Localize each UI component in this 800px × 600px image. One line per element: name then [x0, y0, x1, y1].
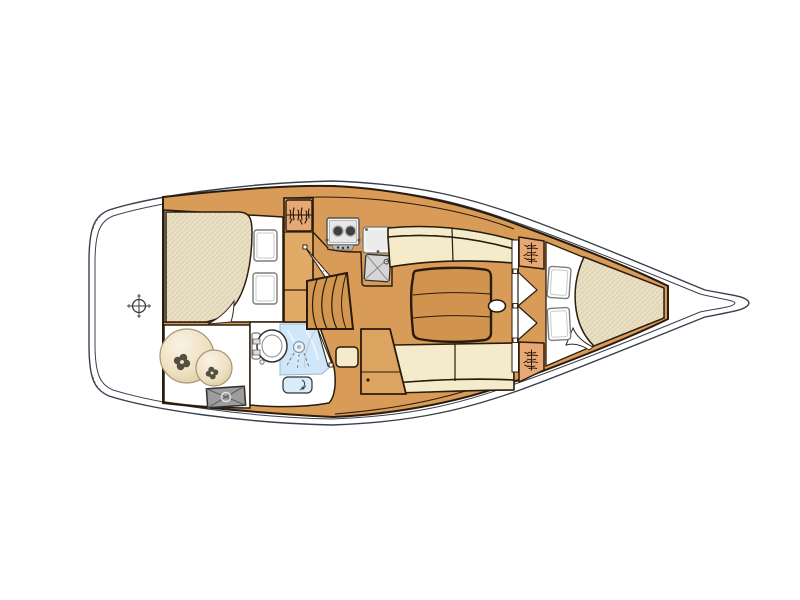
crosshair-icon	[127, 294, 151, 318]
saloon-table	[411, 268, 505, 342]
hinge-dot-icon	[303, 245, 307, 249]
v-berth-pillow-1	[547, 266, 571, 298]
nav-seat-cushion	[336, 347, 358, 367]
aft-berth-pillow-2	[253, 273, 277, 304]
stove-two-burner	[326, 218, 361, 250]
floor-plan-canvas	[0, 0, 800, 600]
round-tank-small	[196, 350, 232, 386]
burner-icon	[333, 226, 344, 237]
hinge-dot-icon	[329, 363, 333, 367]
hanging-locker-forward-bottom	[519, 342, 544, 382]
engine-hatch	[206, 386, 245, 408]
burner-icon	[345, 226, 356, 237]
aft-cabin	[164, 210, 283, 324]
settee-backrest	[394, 379, 514, 393]
hinge-dot-icon	[513, 304, 518, 309]
boat-interior-floor-plan	[0, 0, 800, 600]
settee-seat	[394, 343, 514, 383]
hinge-dot-icon	[513, 338, 518, 343]
washbasin	[283, 377, 312, 393]
v-berth-pillow-2	[547, 307, 571, 340]
toilet	[252, 330, 287, 364]
hinge-dot-icon	[513, 269, 518, 274]
galley-icebox-sink	[364, 254, 392, 282]
table-handle	[489, 300, 506, 312]
head-compartment	[250, 322, 335, 407]
settee-starboard-bottom	[394, 343, 514, 393]
table-top	[411, 268, 491, 342]
hanging-locker-forward-top	[519, 237, 544, 269]
companionway-steps	[307, 273, 353, 329]
